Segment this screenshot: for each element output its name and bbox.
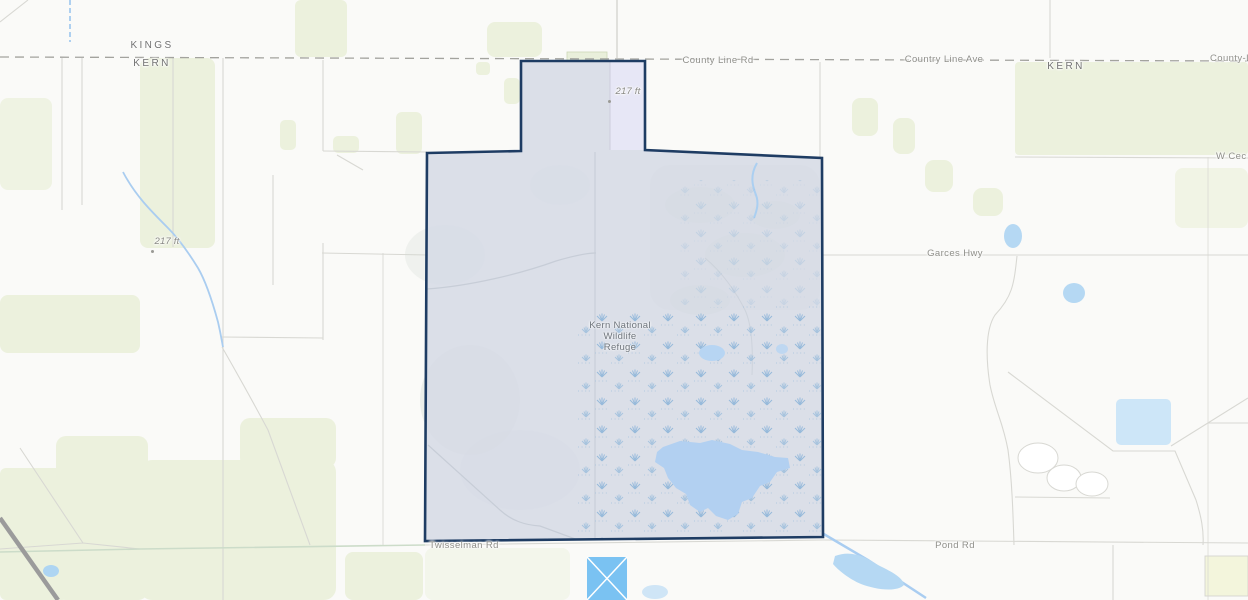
county-label-kings: KINGS: [130, 40, 173, 51]
county-label-kern-east: KERN: [1047, 61, 1084, 72]
elevation-label-west: 217 ft: [155, 236, 180, 247]
refuge-name-label: Kern National Wildlife Refuge: [589, 320, 650, 353]
elevation-dot: [151, 250, 154, 253]
county-label-kern-west: KERN: [133, 58, 170, 69]
elevation-dot: [608, 100, 611, 103]
refuge-name-line3: Refuge: [589, 342, 650, 353]
road-label-county-line-edge: County-L: [1210, 53, 1248, 64]
road-label-w-cecil-edge: W Cec: [1216, 151, 1247, 162]
road-label-country-line-ave: Country Line Ave: [905, 54, 984, 65]
road-label-county-line-rd: County Line Rd: [682, 55, 753, 66]
refuge-name-line1: Kern National: [589, 320, 650, 331]
road-label-garces-hwy: Garces Hwy: [927, 248, 983, 259]
road-label-pond-rd: Pond Rd: [935, 540, 975, 551]
road-label-twisselman-rd: Twisselman Rd: [429, 540, 499, 551]
map-canvas[interactable]: KINGS KERN KERN County Line Rd Country L…: [0, 0, 1248, 600]
refuge-name-line2: Wildlife: [589, 331, 650, 342]
elevation-label-notch: 217 ft: [616, 86, 641, 97]
